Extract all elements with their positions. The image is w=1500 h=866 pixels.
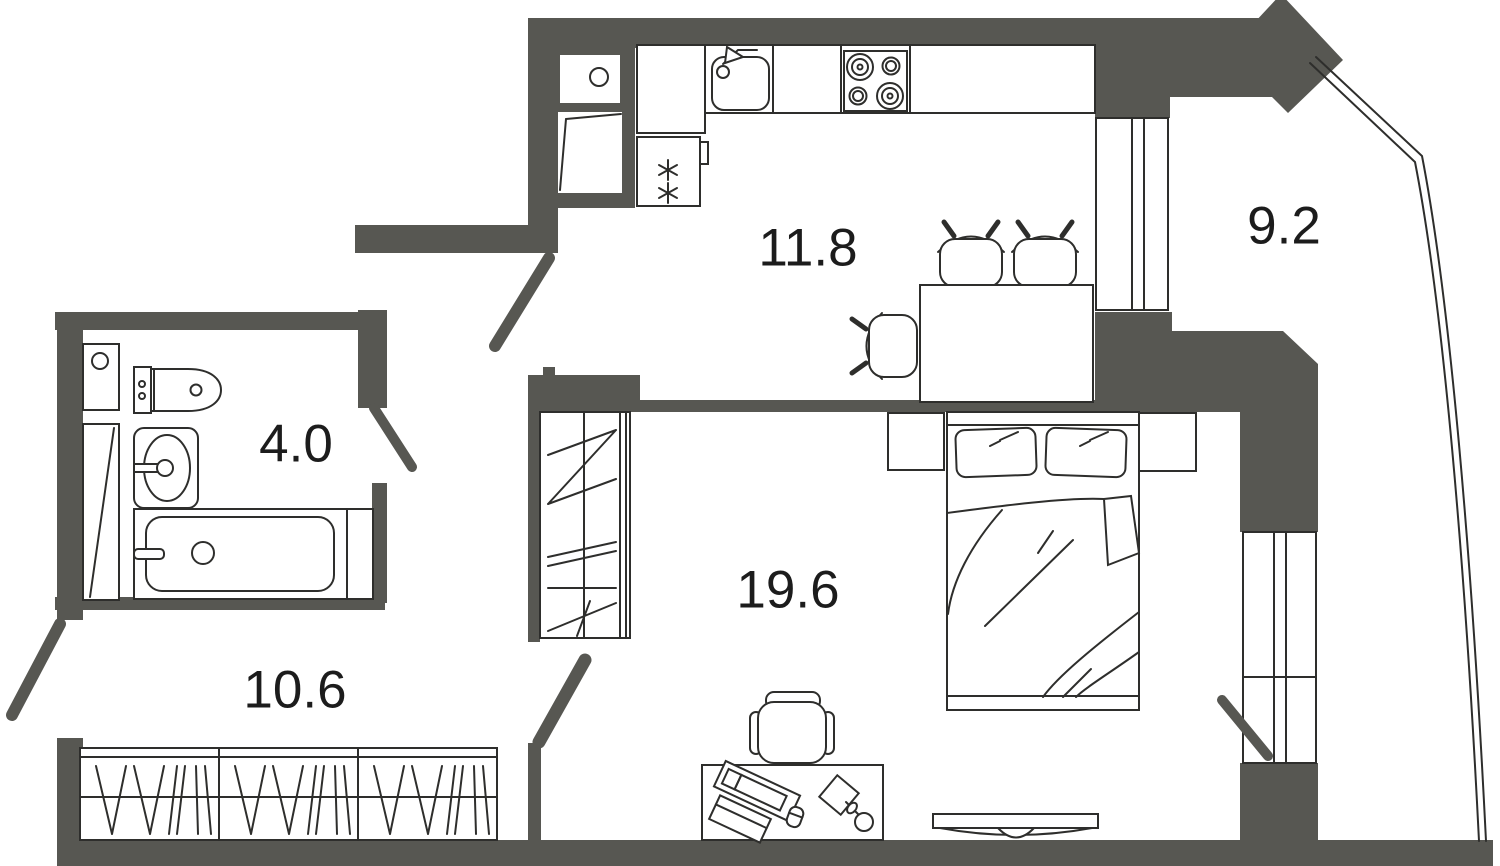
bathtub-icon bbox=[134, 509, 373, 599]
shaft-box bbox=[558, 112, 622, 193]
toilet-icon bbox=[134, 367, 221, 413]
office-chair-icon bbox=[750, 692, 834, 763]
bed-icon bbox=[947, 412, 1139, 710]
wardrobe-icon bbox=[540, 412, 630, 638]
room-label-hallway: 10.6 bbox=[243, 660, 346, 721]
dining-chair-icon bbox=[938, 222, 1004, 287]
pillow-icon bbox=[955, 428, 1037, 478]
dining-table bbox=[920, 285, 1093, 402]
bathroom-shaft-boxes bbox=[83, 344, 119, 600]
floor-plan-drawing bbox=[0, 0, 1500, 866]
dining-chair-icon bbox=[1012, 222, 1078, 287]
nightstand bbox=[1139, 413, 1196, 471]
kitchen-door-swing bbox=[495, 258, 549, 346]
entry-door-swing bbox=[12, 624, 60, 715]
kitchen-sink-icon bbox=[712, 47, 769, 110]
vent-icon bbox=[590, 68, 608, 86]
dining-chair-icon bbox=[852, 313, 917, 379]
nightstand bbox=[888, 413, 944, 470]
dining-set bbox=[852, 222, 1093, 402]
pillow-icon bbox=[1045, 428, 1127, 478]
hall-wardrobe-icon bbox=[80, 748, 497, 840]
stove-icon bbox=[844, 51, 907, 111]
fridge-icon bbox=[637, 137, 708, 206]
shaft-box bbox=[83, 424, 119, 600]
bathroom-door-swing bbox=[374, 408, 412, 467]
tv-icon bbox=[933, 814, 1098, 838]
room-label-kitchen: 11.8 bbox=[758, 218, 857, 279]
room-entry-chamfer-wall bbox=[539, 660, 585, 742]
room-label-living-room: 19.6 bbox=[736, 560, 839, 621]
room-label-bathroom: 4.0 bbox=[259, 414, 333, 475]
desk-icon bbox=[702, 761, 883, 843]
balcony-glazing bbox=[1310, 57, 1486, 841]
room-label-balcony: 9.2 bbox=[1247, 196, 1321, 257]
kitchen-window bbox=[1096, 118, 1168, 310]
living-room-window bbox=[1243, 532, 1316, 763]
floor-plan: 11.8 9.2 4.0 19.6 10.6 bbox=[0, 0, 1500, 866]
kitchen-shaft-boxes bbox=[558, 55, 622, 193]
washbasin-icon bbox=[134, 428, 198, 508]
